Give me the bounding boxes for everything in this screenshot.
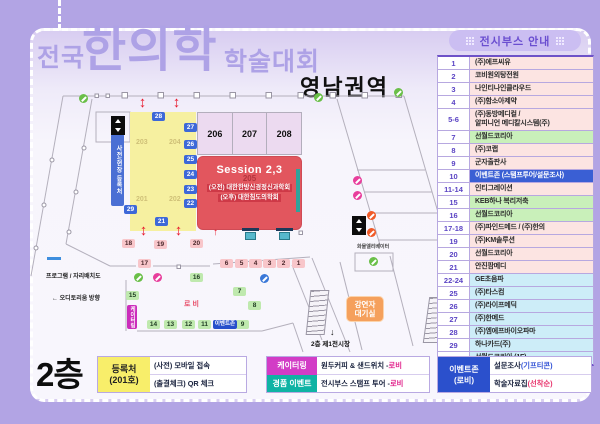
- info-icon: [260, 274, 269, 283]
- booth-name: 인티그레이션: [470, 183, 593, 195]
- map-badge: 7: [233, 287, 246, 296]
- booth-row: 27 (주)한메드: [438, 313, 593, 326]
- facility-marker-icon: [134, 273, 143, 282]
- room-number: 201: [136, 196, 148, 203]
- map-badge: 케이터링: [127, 305, 137, 329]
- map-badge: 8: [248, 301, 261, 310]
- legend-line: 원두커피 & 샌드위치 - 로비: [317, 357, 429, 375]
- map-badge: 24: [184, 170, 197, 179]
- booth-name: (주)에프씨유: [470, 57, 593, 69]
- map-badge: ↕: [136, 96, 149, 105]
- map-badge: 13: [164, 320, 177, 329]
- booth-name: 하나카드(주): [470, 339, 593, 351]
- booth-number: 16: [438, 209, 470, 221]
- booth-name: (주)동방메디컬 / 알피니언 메디칼시스템(주): [470, 109, 593, 130]
- map-badge: 1: [292, 259, 305, 268]
- booth-number: 22-24: [438, 274, 470, 286]
- legend-catering: 케이터링 경품 이벤트 원두커피 & 샌드위치 - 로비 전시부스 스탬프 투어…: [266, 356, 430, 393]
- catering-chip: 케이터링: [267, 357, 317, 375]
- legend-registration: 등록처 (201호) (사전) 모바일 접속 (출결체크) QR 체크: [97, 356, 247, 393]
- facility-marker-icon: [394, 88, 403, 97]
- booth-row: 17-18 (주)파인드메드 / (주)한의: [438, 222, 593, 235]
- booth-name: (주)코랩: [470, 144, 593, 156]
- facility-marker-icon: [79, 94, 88, 103]
- map-badge: 18: [122, 239, 135, 248]
- legend-line: 설문조사 (기프티콘): [490, 357, 591, 375]
- booth-row: 19 (주)KM솔루션: [438, 235, 593, 248]
- map-badge: 11: [198, 320, 211, 329]
- facility-marker-icon: [314, 93, 323, 102]
- lobby-label: 로비: [184, 299, 201, 309]
- restroom-women-icon: [353, 176, 362, 185]
- room-number: 204: [169, 139, 181, 146]
- map-badge: 22: [184, 199, 197, 208]
- map-badge: 이벤트존: [213, 320, 237, 329]
- registration-chip: 등록처 (201호): [98, 357, 150, 392]
- map-badge: ↑: [209, 227, 222, 236]
- restroom-women-icon: [153, 273, 162, 282]
- booth-number: 7: [438, 131, 470, 143]
- grid-icon: [556, 37, 564, 45]
- booth-number: 25: [438, 287, 470, 299]
- room-208: 208: [267, 113, 301, 154]
- booth-row: 4 (주)함소아제약: [438, 96, 593, 109]
- map-badge: 5: [235, 259, 248, 268]
- map-badge: 28: [152, 112, 165, 121]
- booth-row: 11-14 인티그레이션: [438, 183, 593, 196]
- booth-row: 3 나인티나인클라우드: [438, 83, 593, 96]
- map-badge: 17: [138, 259, 151, 268]
- registration-desk-label: 사전/현장 등록처: [111, 134, 124, 206]
- booth-name: (주)엠에프바이오파마: [470, 326, 593, 338]
- booth-row: 28 (주)엠에프바이오파마: [438, 326, 593, 339]
- map-badge: 9: [236, 320, 249, 329]
- map-badge: 15: [126, 291, 139, 300]
- booth-name: (주)라이프메딕: [470, 300, 593, 312]
- booth-row: 20 선월드코리아: [438, 248, 593, 261]
- map-badge: ↕: [137, 224, 150, 233]
- booth-row: 21 안진팜메디: [438, 261, 593, 274]
- booth-row: 29 하나카드(주): [438, 339, 593, 352]
- session-room-205: Session 2,3 205 (오전) 대한한방신경정신과학회 (오후) 대한…: [197, 156, 302, 230]
- booth-name: (주)KM솔루션: [470, 235, 593, 247]
- booth-number: 21: [438, 261, 470, 273]
- booth-row: 1 (주)에프씨유: [438, 57, 593, 70]
- booth-number: 27: [438, 313, 470, 325]
- map-badge: 26: [184, 140, 197, 149]
- bench-icon: [242, 228, 259, 242]
- session-afternoon: (오후) 대한침도의학회: [218, 194, 280, 202]
- booth-name: (주)파인드메드 / (주)한의: [470, 222, 593, 234]
- booth-number: 19: [438, 235, 470, 247]
- map-badge: 16: [190, 273, 203, 282]
- session-morning: (오전) 대한한방신경정신과학회: [207, 184, 292, 192]
- booth-number: 29: [438, 339, 470, 351]
- prize-event-chip: 경품 이벤트: [267, 375, 317, 393]
- floor-plan-poster: 전국 한의학 학술대회 영남권역 203: [0, 0, 600, 424]
- cargo-elevator-label: 화물엘리베이터: [357, 243, 389, 250]
- floor-exit-label: 2층 제1전시장: [311, 338, 350, 348]
- map-badge: 25: [184, 155, 197, 164]
- elevator-icon: [111, 116, 125, 135]
- map-badge: 6: [220, 259, 233, 268]
- booth-number: 5-6: [438, 109, 470, 130]
- booth-name: 선월드코리아: [470, 131, 593, 143]
- map-badge: 20: [190, 239, 203, 248]
- booth-number: 9: [438, 157, 470, 169]
- booth-name: 이벤트존 (스탬프투어/설문조사): [470, 170, 593, 182]
- map-badge: 29: [124, 205, 137, 214]
- booth-row: 15 KEB하나 복리저축: [438, 196, 593, 209]
- booth-number: 10: [438, 170, 470, 182]
- legend-line: 전시부스 스탬프 투어 - 로비: [317, 375, 429, 392]
- auditorium-direction-label: ← 오디토리움 방향: [52, 293, 100, 302]
- booth-row: 2 코비원외탕전원: [438, 70, 593, 83]
- booth-number: 8: [438, 144, 470, 156]
- program-label: 프로그램 / 자리배치도: [46, 271, 101, 280]
- legend-event-zone: 이벤트존 (로비) 설문조사 (기프티콘) 학술자료집 (선착순): [437, 356, 592, 393]
- restroom-men-icon: [367, 211, 376, 220]
- booth-row: 25 (주)타스컴: [438, 287, 593, 300]
- room-number: 202: [169, 196, 181, 203]
- map-badge: 3: [263, 259, 276, 268]
- booth-name: GE초음파: [470, 274, 593, 286]
- booth-name: (주)타스컴: [470, 287, 593, 299]
- session-room-number: 205: [198, 176, 301, 182]
- map-badge: 19: [154, 240, 167, 249]
- legend-line: 학술자료집 (선착순): [490, 375, 591, 392]
- booth-number: 15: [438, 196, 470, 208]
- map-badge: ↕: [172, 224, 185, 233]
- booth-name: 선월드코리아: [470, 248, 593, 260]
- down-arrow-icon: ↓: [330, 327, 335, 337]
- grid-icon: [466, 37, 474, 45]
- map-badge: 4: [249, 259, 262, 268]
- legend-line: (사전) 모바일 접속: [150, 357, 246, 375]
- booth-name: 나인티나인클라우드: [470, 83, 593, 95]
- booth-number: 3: [438, 83, 470, 95]
- map-badge: ↕: [170, 96, 183, 105]
- booth-name: KEB하나 복리저축: [470, 196, 593, 208]
- restroom-men-icon: [367, 228, 376, 237]
- booth-number: 2: [438, 70, 470, 82]
- booth-row: 5-6 (주)동방메디컬 / 알피니언 메디칼시스템(주): [438, 109, 593, 131]
- booth-name: (주)한메드: [470, 313, 593, 325]
- map-badge: 2: [277, 259, 290, 268]
- booth-number: 20: [438, 248, 470, 260]
- room-207: 207: [233, 113, 268, 154]
- booth-number: 11-14: [438, 183, 470, 195]
- booth-number: 1: [438, 57, 470, 69]
- booth-guide-header: 전시부스 안내: [449, 30, 581, 51]
- booth-number: 4: [438, 96, 470, 108]
- legend-line: (출결체크) QR 체크: [150, 375, 246, 392]
- room-number: 203: [136, 139, 148, 146]
- booth-number: 28: [438, 326, 470, 338]
- booth-row: 16 선월드코리아: [438, 209, 593, 222]
- booth-name: 안진팜메디: [470, 261, 593, 273]
- booth-number: 17-18: [438, 222, 470, 234]
- map-badge: 14: [147, 320, 160, 329]
- map-badge: 27: [184, 123, 197, 132]
- booth-name: (주)함소아제약: [470, 96, 593, 108]
- booth-name: 선월드코리아: [470, 209, 593, 221]
- map-badge: 23: [184, 185, 197, 194]
- booth-row: 8 (주)코랩: [438, 144, 593, 157]
- booth-table: 1 (주)에프씨유 2 코비원외탕전원 3 나인티나인클라우드 4 (주)함소아…: [437, 55, 594, 366]
- booth-row: 26 (주)라이프메딕: [438, 300, 593, 313]
- speaker-waiting-room-label: 강연자 대기실: [346, 296, 384, 322]
- booth-row: 10 이벤트존 (스탬프투어/설문조사): [438, 170, 593, 183]
- booth-row: 7 선월드코리아: [438, 131, 593, 144]
- legend-tick: [47, 257, 61, 260]
- bench-icon: [276, 228, 293, 242]
- booth-number: 26: [438, 300, 470, 312]
- event-zone-chip: 이벤트존 (로비): [438, 357, 490, 392]
- map-badge: 21: [155, 217, 168, 226]
- booth-name: 코비원외탕전원: [470, 70, 593, 82]
- booth-guide-title: 전시부스 안내: [480, 33, 551, 49]
- booth-row: 22-24 GE초음파: [438, 274, 593, 287]
- elevator-icon: [352, 216, 366, 235]
- session-rooms-206-208: 206 207 208: [197, 112, 302, 155]
- floor-label: 2층: [36, 348, 83, 396]
- facility-marker-icon: [369, 257, 378, 266]
- room-206: 206: [198, 113, 233, 154]
- booth-name: 군자출판사: [470, 157, 593, 169]
- booth-row: 9 군자출판사: [438, 157, 593, 170]
- stage-strip: [296, 169, 300, 212]
- restroom-women-icon: [353, 191, 362, 200]
- map-badge: 12: [182, 320, 195, 329]
